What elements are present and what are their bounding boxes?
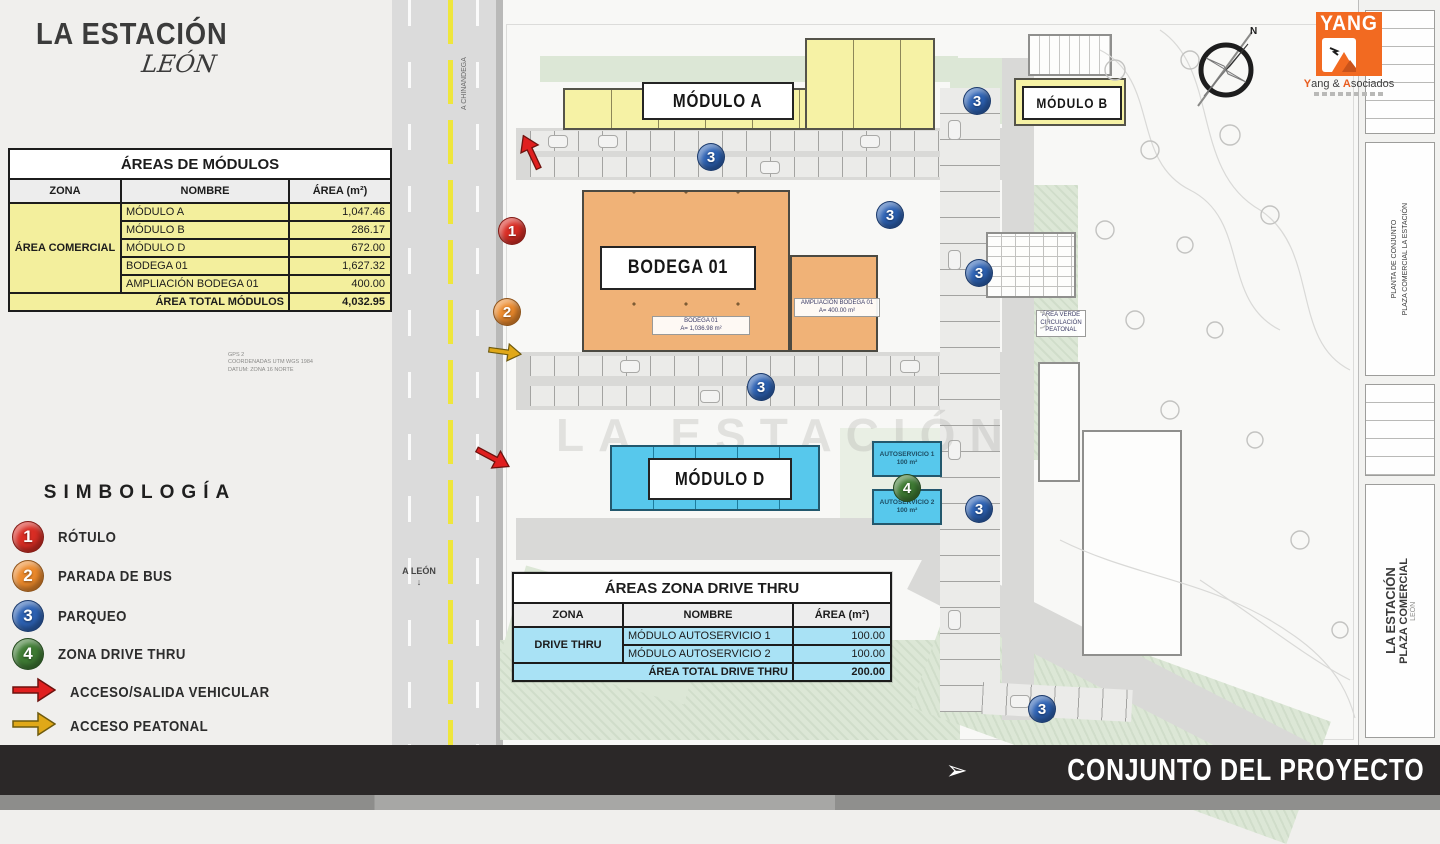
car-icon bbox=[948, 250, 961, 270]
gps-note: GPS 2 COORDENADAS UTM WGS 1984 DATUM: ZO… bbox=[228, 352, 313, 374]
legend-item-acceso-vehicular: ACCESO/SALIDA VEHICULAR bbox=[12, 675, 312, 709]
project-logo-subtitle: LEÓN bbox=[34, 50, 228, 78]
car-icon bbox=[548, 135, 568, 148]
symbology-title: SIMBOLOGÍA bbox=[0, 482, 280, 504]
scale-date-box bbox=[1365, 384, 1435, 476]
yang-firm-name: Yang & Asociados bbox=[1302, 78, 1396, 90]
svg-text:N: N bbox=[1250, 26, 1257, 37]
yang-logo-emblem bbox=[1322, 38, 1356, 72]
parada-bus-marker: 2 bbox=[493, 298, 521, 326]
car-icon bbox=[860, 135, 880, 148]
zone-label: ÁREA COMERCIAL bbox=[9, 203, 121, 293]
table-row: MÓDULO A bbox=[121, 203, 289, 221]
marker-1-icon: 1 bbox=[12, 521, 44, 553]
table-cell-area: 286.17 bbox=[289, 221, 391, 239]
zone-label: DRIVE THRU bbox=[513, 627, 623, 663]
chevron-right-icon: ➢ bbox=[946, 757, 968, 783]
rotulo-marker: 1 bbox=[498, 217, 526, 245]
col-header-area: ÁREA (m²) bbox=[793, 603, 891, 627]
table-row: AMPLIACIÓN BODEGA 01 bbox=[121, 275, 289, 293]
table-row: MÓDULO AUTOSERVICIO 1 bbox=[623, 627, 793, 645]
legend-item-parqueo: 3 PARQUEO bbox=[12, 599, 312, 633]
yang-logo: YANG Yang & Asociados bbox=[1302, 12, 1396, 96]
modulo-d-label: MÓDULO D bbox=[648, 458, 792, 500]
project-logo-title: LA ESTACIÓN bbox=[36, 16, 203, 52]
legend-item-parada-bus: 2 PARADA DE BUS bbox=[12, 559, 312, 593]
car-icon bbox=[900, 360, 920, 373]
parqueo-marker: 3 bbox=[965, 495, 993, 523]
titleblock: PLANTA DE CONJUNTO PLAZA COMERCIAL LA ES… bbox=[1358, 0, 1440, 745]
car-icon bbox=[760, 161, 780, 174]
col-header-zona: ZONA bbox=[513, 603, 623, 627]
north-compass-icon: N bbox=[1188, 22, 1264, 114]
parqueo-marker: 3 bbox=[963, 87, 991, 115]
table-cell-area: 672.00 bbox=[289, 239, 391, 257]
road-direction-south: A LEÓN↓ bbox=[396, 566, 442, 588]
car-icon bbox=[1010, 695, 1030, 708]
col-header-nombre: NOMBRE bbox=[623, 603, 793, 627]
car-icon bbox=[948, 610, 961, 630]
left-panel: LA ESTACIÓN LEÓN ÁREAS DE MÓDULOS ZONA N… bbox=[0, 0, 392, 745]
car-icon bbox=[700, 390, 720, 403]
parqueo-marker: 3 bbox=[965, 259, 993, 287]
footer-title: CONJUNTO DEL PROYECTO bbox=[1067, 752, 1424, 788]
table-cell-area: 1,627.32 bbox=[289, 257, 391, 275]
legend-item-acceso-peatonal: ACCESO PEATONAL bbox=[12, 709, 312, 743]
project-logo: LA ESTACIÓN LEÓN bbox=[36, 16, 226, 78]
table-cell-area: 100.00 bbox=[793, 627, 891, 645]
footer-bar: ➢ CONJUNTO DEL PROYECTO bbox=[0, 745, 1440, 795]
car-icon bbox=[620, 360, 640, 373]
modulo-a-building-east bbox=[805, 38, 935, 130]
total-label: ÁREA TOTAL DRIVE THRU bbox=[513, 663, 793, 681]
col-header-area: ÁREA (m²) bbox=[289, 179, 391, 203]
modulo-a-label: MÓDULO A bbox=[642, 82, 794, 120]
table-row: MÓDULO B bbox=[121, 221, 289, 239]
marker-3-icon: 3 bbox=[12, 600, 44, 632]
main-road bbox=[392, 0, 496, 745]
ampliacion-area-chip: AMPLIACIÓN BODEGA 01A= 400.00 m² bbox=[794, 298, 880, 317]
drive-thru-area-table: ÁREAS ZONA DRIVE THRU ZONA NOMBRE ÁREA (… bbox=[512, 572, 892, 682]
table-cell-area: 400.00 bbox=[289, 275, 391, 293]
yang-logo-word: YANG bbox=[1319, 12, 1380, 36]
marker-2-icon: 2 bbox=[12, 560, 44, 592]
footer-strip bbox=[0, 795, 1440, 810]
legend-item-drive-thru: 4 ZONA DRIVE THRU bbox=[12, 637, 312, 671]
car-icon bbox=[948, 120, 961, 140]
bodega-area-chip: BODEGA 01A= 1,036.98 m² bbox=[652, 316, 750, 335]
parqueo-marker: 3 bbox=[697, 143, 725, 171]
table-cell-area: 1,047.46 bbox=[289, 203, 391, 221]
drive-thru-marker: 4 bbox=[893, 474, 921, 502]
road-lane-line bbox=[476, 0, 479, 745]
col-header-zona: ZONA bbox=[9, 179, 121, 203]
table-cell-area: 100.00 bbox=[793, 645, 891, 663]
yang-tagline bbox=[1314, 92, 1384, 96]
yellow-arrow-icon bbox=[12, 711, 56, 742]
legend-item-rotulo: 1 RÓTULO bbox=[12, 520, 312, 554]
sheet-info-box: PLANTA DE CONJUNTO PLAZA COMERCIAL LA ES… bbox=[1365, 142, 1435, 376]
col-header-nombre: NOMBRE bbox=[121, 179, 289, 203]
red-arrow-icon bbox=[12, 677, 56, 708]
terrain-contours bbox=[1040, 20, 1358, 720]
yang-logo-mark: YANG bbox=[1316, 12, 1382, 76]
total-label: ÁREA TOTAL MÓDULOS bbox=[9, 293, 289, 311]
road-center-line bbox=[448, 0, 453, 745]
parqueo-marker: 3 bbox=[876, 201, 904, 229]
car-icon bbox=[598, 135, 618, 148]
parqueo-marker: 3 bbox=[747, 373, 775, 401]
bodega-01-label: BODEGA 01 bbox=[600, 246, 756, 290]
marker-4-icon: 4 bbox=[12, 638, 44, 670]
table-row: MÓDULO D bbox=[121, 239, 289, 257]
curb bbox=[496, 0, 503, 745]
total-value: 200.00 bbox=[793, 663, 891, 681]
table-row: BODEGA 01 bbox=[121, 257, 289, 275]
pedestrian-access-arrow bbox=[486, 338, 523, 366]
modules-table-title: ÁREAS DE MÓDULOS bbox=[9, 149, 391, 179]
modules-area-table: ÁREAS DE MÓDULOS ZONA NOMBRE ÁREA (m²) Á… bbox=[8, 148, 392, 312]
drive-table-title: ÁREAS ZONA DRIVE THRU bbox=[513, 573, 891, 603]
project-name-box: LA ESTACIÓN PLAZA COMERCIAL LEÓN bbox=[1365, 484, 1435, 738]
autoservicio-1-building: AUTOSERVICIO 1100 m² bbox=[872, 441, 942, 477]
road-direction-north: A CHINANDEGA bbox=[461, 30, 468, 110]
total-value: 4,032.95 bbox=[289, 293, 391, 311]
road-lane-line bbox=[408, 0, 411, 745]
table-row: MÓDULO AUTOSERVICIO 2 bbox=[623, 645, 793, 663]
